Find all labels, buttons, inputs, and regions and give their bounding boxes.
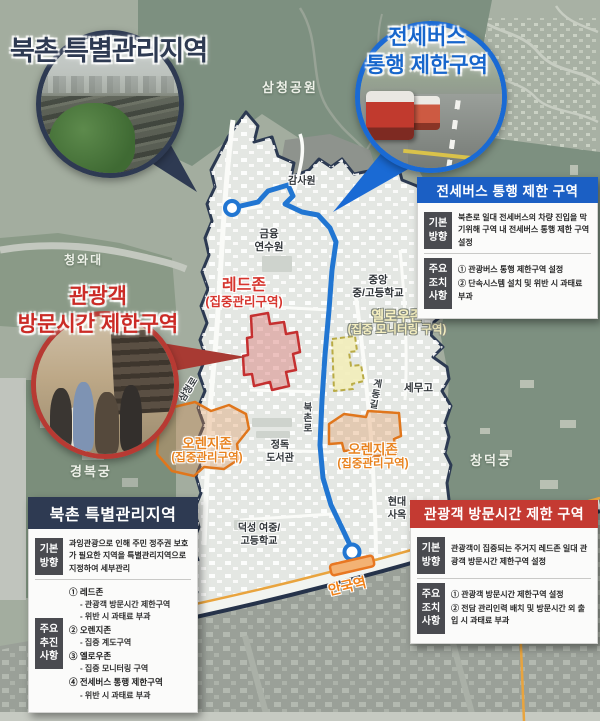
samcheong-park-label: 삼청공원 — [262, 80, 318, 96]
plan-item: ④ 전세버스 통행 제한구역 - 위반 시 과태료 부과 — [69, 676, 170, 700]
bukchon-box-major-row: 주요추진사항 ① 레드존 - 관광객 방문시간 제한구역 - 위반 시 과태료 … — [35, 579, 191, 707]
bus-box-basic-row: 기본방향 북촌로 일대 전세버스의 차량 진입을 막기위해 구역 내 전세버스 … — [424, 208, 591, 253]
bus-restriction-title: 전세버스 통행 제한구역 — [346, 24, 508, 81]
tourist-box-basic-row: 기본방향 관광객이 집중되는 주거지 레드존 일대 관광객 방문시간 제한구역 … — [417, 533, 591, 578]
bukchon-box-header: 북촌 특별관리지역 — [28, 497, 198, 529]
finance-institute-label: 금융 연수원 — [238, 228, 300, 254]
orange-zone-right-label: 오렌지존 (집중관리구역) — [328, 442, 418, 471]
action-item: ② 단속시스템 설치 및 위반 시 과태료 부과 — [458, 278, 591, 303]
tourist-restriction-info-box: 관광객 방문시간 제한 구역 기본방향 관광객이 집중되는 주거지 레드존 일대… — [410, 500, 598, 644]
tourist-title-line2: 방문시간 제한구역 — [8, 311, 188, 339]
red-zone-label: 레드존 (집중관리구역) — [188, 277, 300, 310]
bukchonro-road-label: 북촌로 — [300, 402, 312, 434]
hyundai-building-label: 현대 사옥 — [380, 497, 414, 522]
jungang-school-label: 중앙 중/고등학교 — [336, 274, 420, 300]
route-start-marker — [225, 201, 239, 215]
jeongdok-library-label: 정독 도서관 — [256, 440, 304, 465]
changdeokgung-label: 창덕궁 — [470, 453, 512, 469]
gyeongbokgung-label: 경복궁 — [70, 464, 112, 480]
basic-direction-text: 과잉관광으로 인해 주민 정주권 보호가 필요한 지역을 특별관리지역으로 지정… — [69, 538, 191, 575]
basic-direction-label: 기본방향 — [417, 537, 445, 574]
gamsawon-label: 감사원 — [288, 176, 316, 189]
bukchon-box-body: 기본방향 과잉관광으로 인해 주민 정주권 보호가 필요한 지역을 특별관리지역… — [28, 529, 198, 713]
bus-box-major-row: 주요조치사항 ① 관광버스 통행 제한구역 설정 ② 단속시스템 설치 및 위반… — [424, 253, 591, 313]
semugo-label: 세무고 — [404, 382, 433, 395]
basic-direction-text: 관광객이 집중되는 주거지 레드존 일대 관광객 방문시간 제한구역 설정 — [451, 543, 591, 568]
bukchon-map-infographic: 북촌 특별관리지역 전세버스 통행 제한구역 관광객 방문시간 제한구역 레드존… — [0, 0, 600, 721]
major-plans-text: ① 레드존 - 관광객 방문시간 제한구역 - 위반 시 과태료 부과 ② 오렌… — [69, 584, 170, 703]
plan-item: ③ 옐로우존 - 집중 모니터링 구역 — [69, 650, 170, 674]
bus-box-header: 전세버스 통행 제한 구역 — [417, 177, 598, 203]
basic-direction-text: 북촌로 일대 전세버스의 차량 진입을 막기위해 구역 내 전세버스 통행 제한… — [458, 212, 591, 249]
major-actions-text: ① 관광버스 통행 제한구역 설정 ② 단속시스템 설치 및 위반 시 과태료 … — [458, 262, 591, 305]
tourist-box-major-row: 주요조치사항 ① 관광객 방문시간 제한구역 설정 ② 전담 관리인력 배치 및… — [417, 578, 591, 638]
major-actions-label: 주요조치사항 — [417, 583, 445, 634]
route-end-marker — [345, 545, 360, 560]
basic-direction-label: 기본방향 — [424, 212, 452, 249]
major-actions-text: ① 관광객 방문시간 제한구역 설정 ② 전담 관리인력 배치 및 방문시간 외… — [451, 587, 591, 630]
bus-restriction-info-box: 전세버스 통행 제한 구역 기본방향 북촌로 일대 전세버스의 차량 진입을 막… — [417, 177, 598, 319]
bukchon-box-basic-row: 기본방향 과잉관광으로 인해 주민 정주권 보호가 필요한 지역을 특별관리지역… — [35, 534, 191, 579]
bukchon-zone-title: 북촌 특별관리지역 — [10, 33, 207, 69]
deoksung-school-label: 덕성 여중/ 고등학교 — [226, 523, 292, 548]
action-item: ② 전담 관리인력 배치 및 방문시간 외 출입 시 과태료 부과 — [451, 603, 591, 628]
tourist-title-line1: 관광객 — [8, 283, 188, 311]
major-plans-label: 주요추진사항 — [35, 618, 63, 669]
action-item: ① 관광객 방문시간 제한구역 설정 — [451, 589, 591, 601]
bukchon-management-info-box: 북촌 특별관리지역 기본방향 과잉관광으로 인해 주민 정주권 보호가 필요한 … — [28, 497, 198, 713]
bus-box-body: 기본방향 북촌로 일대 전세버스의 차량 진입을 막기위해 구역 내 전세버스 … — [417, 203, 598, 319]
tourist-box-body: 기본방향 관광객이 집중되는 주거지 레드존 일대 관광객 방문시간 제한구역 … — [410, 528, 598, 644]
bus-title-line2: 통행 제한구역 — [346, 52, 508, 80]
major-actions-label: 주요조치사항 — [424, 258, 452, 309]
plan-item: ① 레드존 - 관광객 방문시간 제한구역 - 위반 시 과태료 부과 — [69, 586, 170, 622]
tourist-box-header: 관광객 방문시간 제한 구역 — [410, 500, 598, 528]
tourist-restriction-title: 관광객 방문시간 제한구역 — [8, 283, 188, 340]
basic-direction-label: 기본방향 — [35, 538, 63, 575]
bus-title-line1: 전세버스 — [346, 24, 508, 52]
action-item: ① 관광버스 통행 제한구역 설정 — [458, 264, 591, 276]
plan-item: ② 오렌지존 - 집중 계도구역 — [69, 624, 170, 648]
cheongwadae-label: 청와대 — [64, 253, 103, 268]
